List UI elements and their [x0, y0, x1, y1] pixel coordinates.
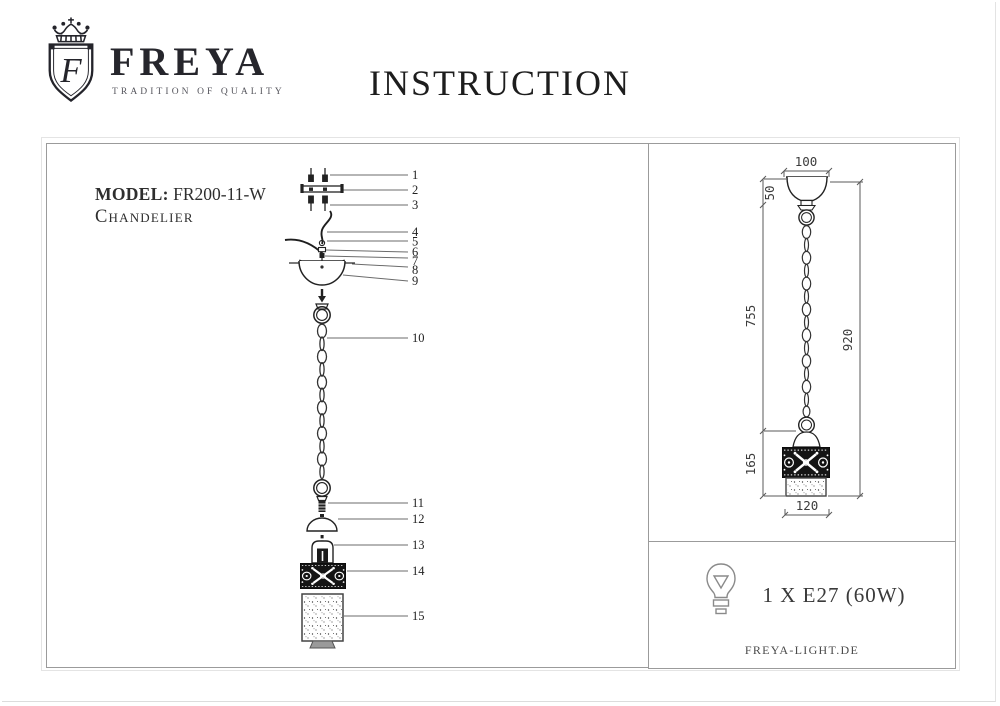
svg-text:11: 11 — [412, 496, 424, 510]
bottom-hook-ring — [314, 480, 330, 501]
part-wire — [321, 211, 331, 244]
dim-suspension-length: 755 — [743, 305, 758, 328]
part-socket — [312, 541, 333, 563]
dim-total-height: 920 — [840, 329, 855, 352]
page-title: INSTRUCTION — [0, 62, 1000, 104]
part-nipple — [319, 501, 326, 512]
svg-text:10: 10 — [412, 331, 425, 345]
dim-canopy-height: 50 — [762, 185, 777, 200]
top-hook-ring — [314, 304, 330, 323]
part-glass-shade — [302, 594, 343, 648]
assembled-canopy — [786, 177, 828, 225]
dimension-view-panel: 100 50 755 920 165 120 — [648, 143, 956, 544]
part-screws-bottom — [309, 196, 328, 211]
svg-text:9: 9 — [412, 274, 418, 288]
part-mounting-bracket — [300, 184, 343, 193]
part-chain — [318, 324, 327, 478]
part-dome-cap — [307, 514, 337, 531]
exploded-diagram: 1 2 3 4 5 6 7 8 9 10 11 12 13 14 15 — [47, 144, 648, 665]
svg-text:1: 1 — [412, 168, 418, 182]
part-ornate-band — [300, 563, 346, 589]
bulb-icon — [698, 561, 744, 629]
exploded-view-panel: MODEL: FR200-11-W Chandelier — [46, 143, 651, 668]
svg-text:12: 12 — [412, 512, 425, 526]
dim-shade-width: 120 — [796, 498, 819, 513]
svg-text:14: 14 — [412, 564, 425, 578]
bulb-spec: 1 X E27 (60W) — [762, 583, 905, 608]
assembled-chain — [802, 226, 810, 417]
part-number-labels: 1 2 3 4 5 6 7 8 9 10 11 12 13 14 15 — [412, 168, 425, 623]
part-canopy — [299, 261, 345, 285]
leader-lines — [325, 175, 408, 616]
svg-text:15: 15 — [412, 609, 425, 623]
svg-text:2: 2 — [412, 183, 418, 197]
supply-cable — [285, 240, 323, 254]
dimension-diagram: 100 50 755 920 165 120 — [649, 144, 953, 541]
lamp-spec-row: 1 X E27 (60W) — [649, 556, 955, 634]
dim-canopy-width: 100 — [795, 154, 818, 169]
part-screws-top — [309, 168, 328, 182]
lamp-spec-panel: 1 X E27 (60W) FREYA-LIGHT.DE — [648, 541, 956, 669]
website: FREYA-LIGHT.DE — [649, 643, 955, 658]
down-arrow — [318, 289, 326, 303]
svg-text:13: 13 — [412, 538, 425, 552]
svg-text:3: 3 — [412, 198, 418, 212]
assembled-shade — [782, 417, 830, 496]
dim-shade-height: 165 — [743, 453, 758, 476]
